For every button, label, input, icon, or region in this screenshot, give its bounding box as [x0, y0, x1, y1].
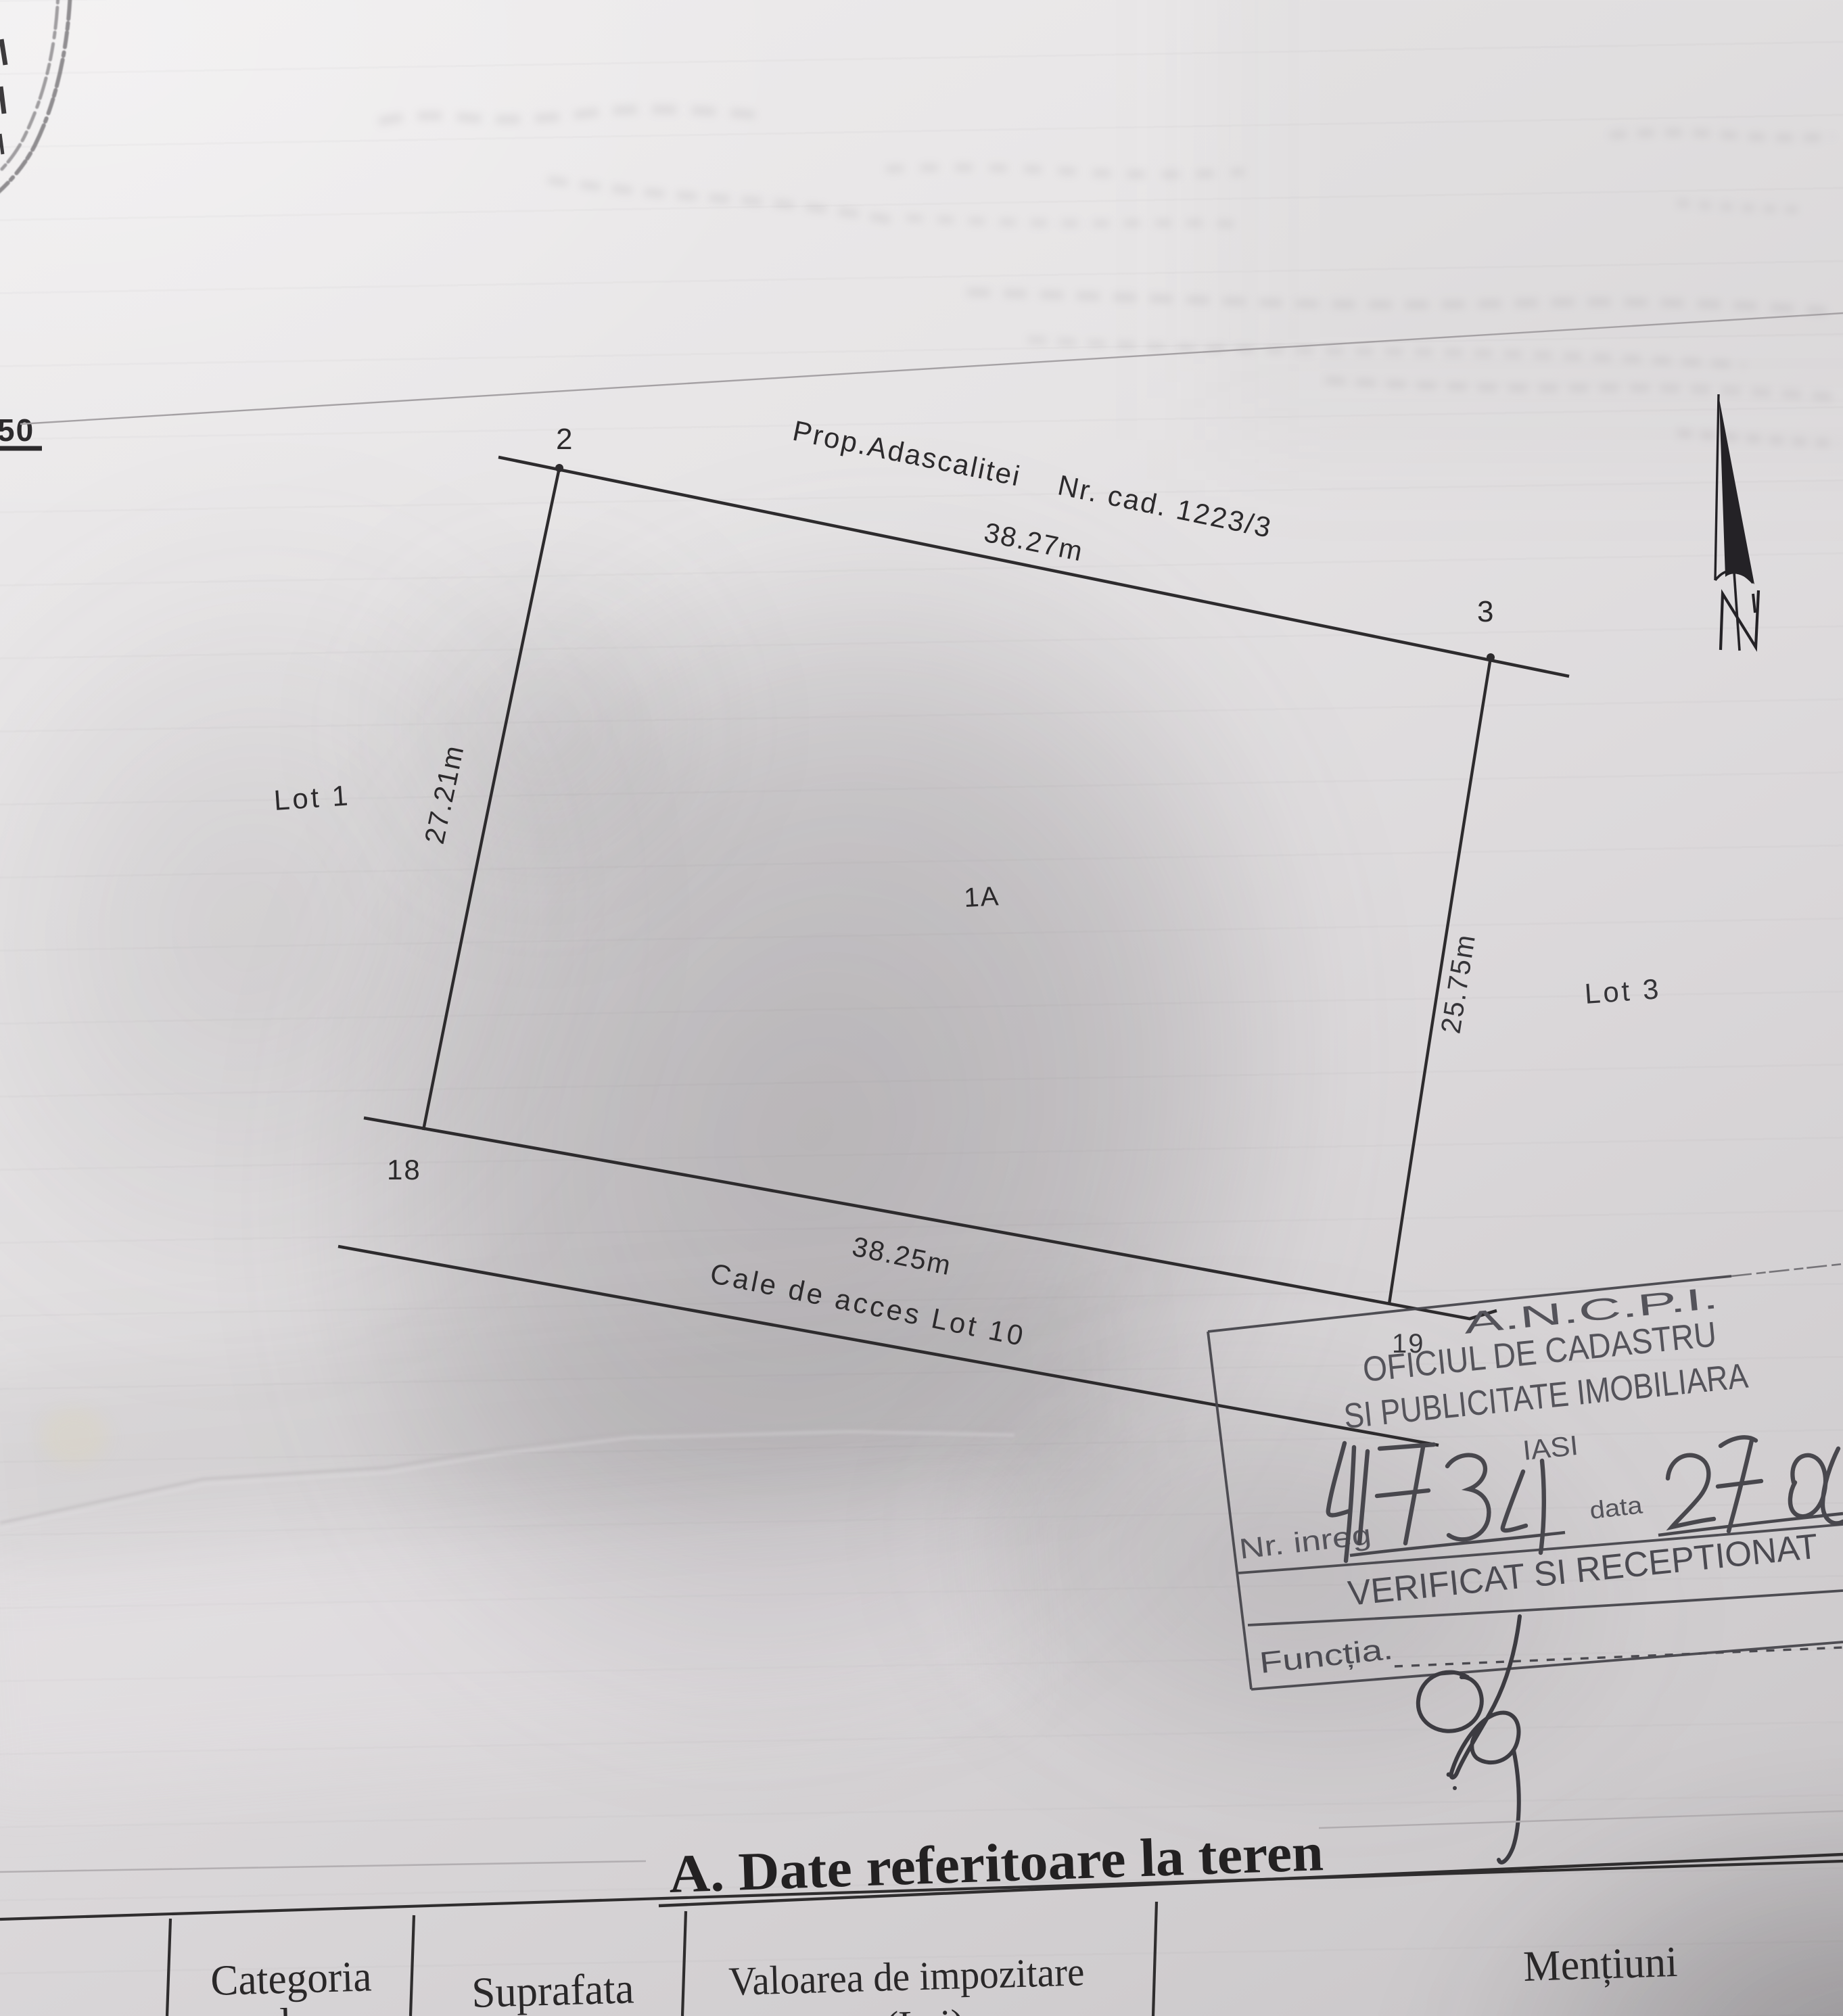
svg-text:Prop.Adascalitei Nr. cad. 1: Prop.Adascalitei Nr. cad. 1223/3 — [790, 415, 1275, 544]
svg-text:Suprafata: Suprafata — [471, 1964, 634, 2016]
svg-text:3: 3 — [1477, 595, 1493, 628]
svg-text:Nr. inreg: Nr. inreg — [1238, 1518, 1373, 1565]
svg-text:18: 18 — [387, 1154, 421, 1186]
svg-text:Mențiuni: Mențiuni — [1522, 1938, 1678, 1990]
svg-text:27.21m: 27.21m — [419, 742, 470, 847]
svg-text:(Lei): (Lei) — [885, 2001, 965, 2016]
svg-text:Cale de acces Lot 10: Cale de acces Lot 10 — [707, 1257, 1028, 1353]
svg-text:Valoarea de impozitare: Valoarea de impozitare — [728, 1949, 1086, 2004]
svg-text:Funcția.: Funcția. — [1258, 1633, 1395, 1680]
svg-text:38.25m: 38.25m — [849, 1231, 954, 1282]
svg-text:de: de — [268, 1998, 310, 2016]
svg-text:25.75m: 25.75m — [1434, 931, 1481, 1035]
svg-text:Lot 3: Lot 3 — [1583, 972, 1662, 1010]
svg-text:50: 50 — [0, 413, 34, 448]
svg-text:Categoria: Categoria — [210, 1952, 372, 2005]
svg-text:1A: 1A — [963, 881, 1000, 913]
svg-text:data: data — [1588, 1491, 1644, 1524]
svg-text:VERIFICAT SI RECEPTIONAT: VERIFICAT SI RECEPTIONAT — [1346, 1527, 1819, 1614]
svg-text:Lot 1: Lot 1 — [273, 779, 351, 816]
svg-text:IASI: IASI — [1521, 1430, 1579, 1466]
svg-text:2: 2 — [556, 423, 572, 456]
